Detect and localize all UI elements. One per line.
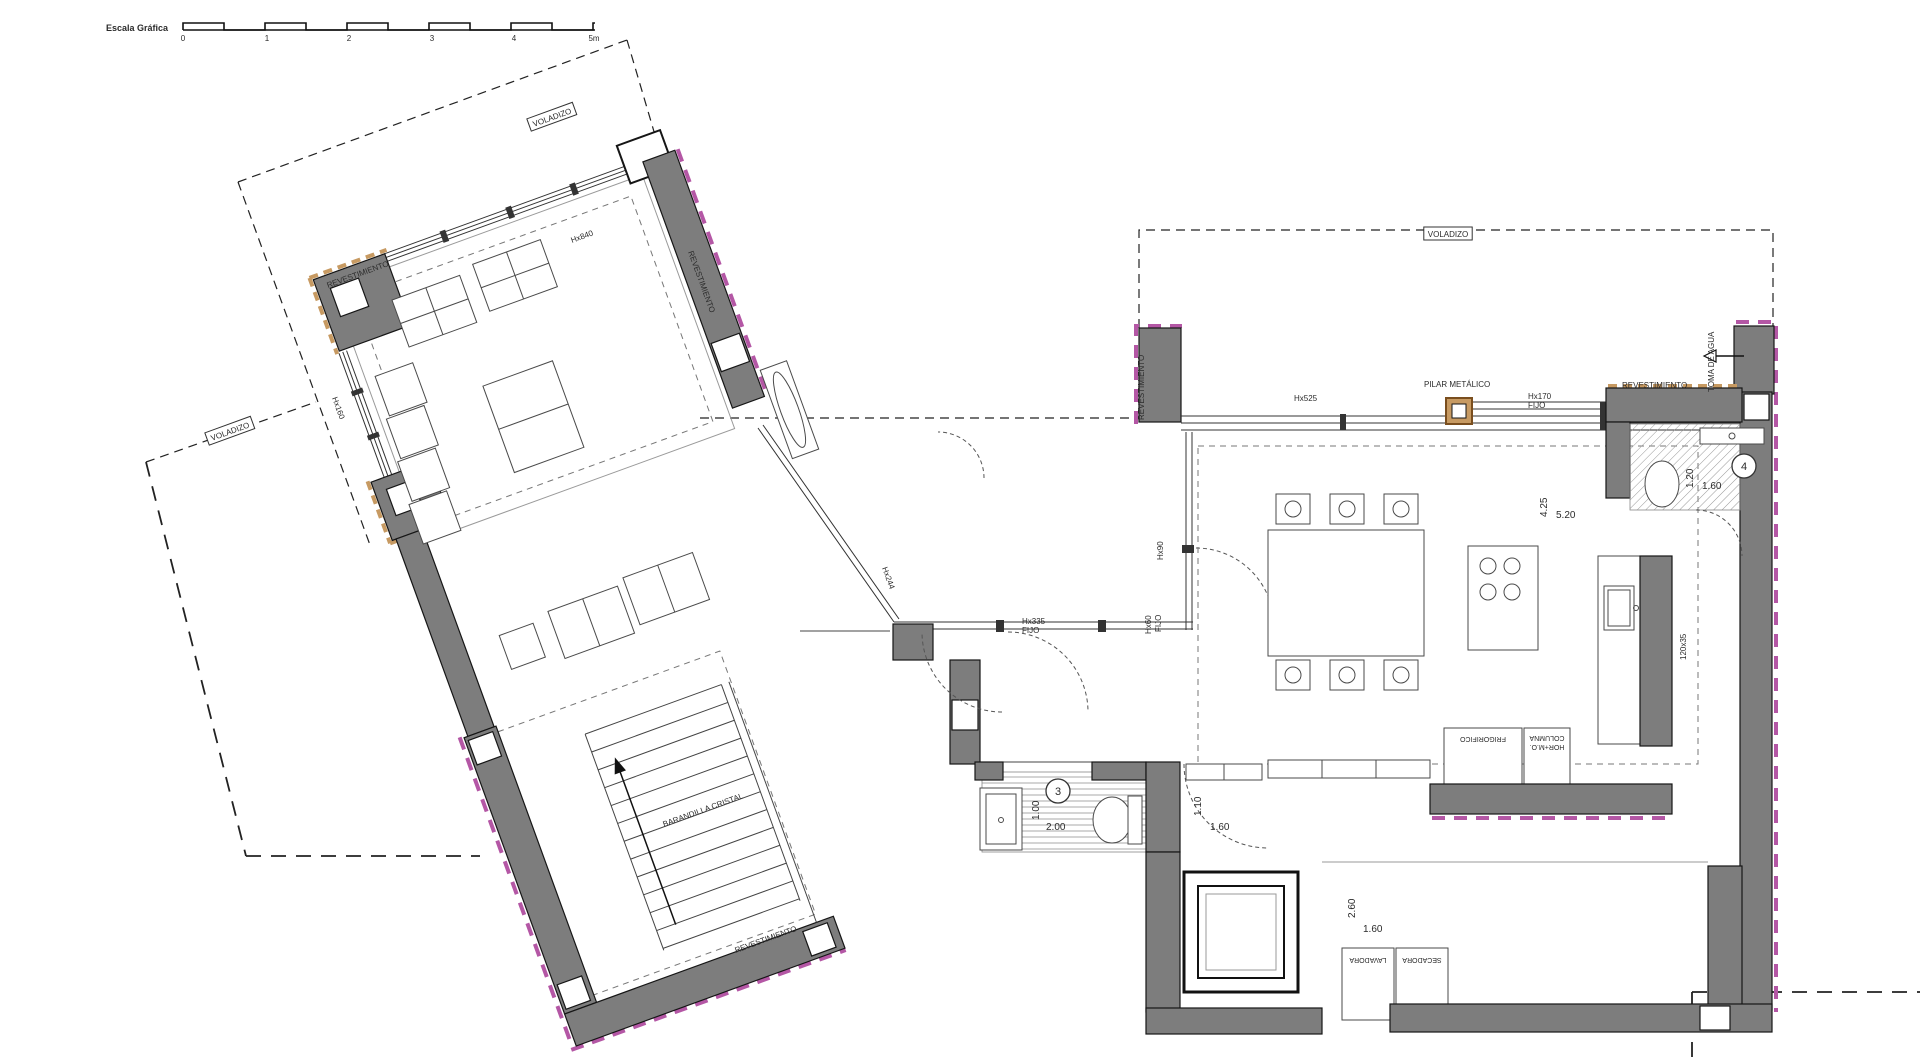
dim-kitchen-depth: 4.25 [1539, 497, 1550, 517]
dim-laundry-depth: 2.60 [1347, 898, 1358, 918]
voladizo-top-left: VOLADIZO [527, 102, 577, 131]
svg-text:FIJO: FIJO [1022, 626, 1039, 635]
vanity-bath4 [1700, 428, 1764, 444]
window-label-hx90: Hx90 [1156, 541, 1165, 560]
door-swing-kitchen [1196, 548, 1274, 626]
door-swing-bath4 [1696, 510, 1742, 556]
voladizo-mid-left: VOLADIZO [205, 416, 255, 445]
toma-de-agua: TOMA DE AGUA [1707, 331, 1716, 392]
svg-text:5.20: 5.20 [1556, 510, 1576, 521]
scale-tick-5: 5m [588, 34, 599, 43]
svg-text:COLUMNA: COLUMNA [1529, 734, 1564, 741]
scale-bar [183, 23, 595, 30]
svg-text:Hx60: Hx60 [1144, 615, 1153, 634]
appliance-lavadora: LAVADORA [1349, 956, 1386, 963]
svg-text:4: 4 [1741, 461, 1747, 473]
pillar-entry [893, 624, 933, 660]
svg-text:Hx840: Hx840 [570, 228, 595, 245]
window-label-hx244: Hx244 [880, 566, 897, 591]
scale-tick-4: 4 [512, 34, 517, 43]
window-label-hx160: Hx160 [330, 396, 347, 421]
scale-tick-1: 1 [265, 34, 270, 43]
dim-hall-width: 1.60 [1210, 822, 1230, 833]
svg-text:FIJO: FIJO [1154, 615, 1163, 632]
svg-text:120x35: 120x35 [1679, 633, 1688, 660]
kitchen-island [1468, 546, 1538, 650]
wall-west-lower [396, 529, 494, 736]
dim-bath3-width: 2.00 [1046, 822, 1066, 833]
svg-text:2.60: 2.60 [1347, 898, 1358, 918]
stair-railing-label: BARANDILLA CRISTAL [662, 791, 745, 829]
svg-text:3: 3 [430, 34, 435, 43]
window-label-hx840: Hx840 [570, 228, 595, 245]
svg-text:Hx244: Hx244 [880, 566, 897, 591]
door-swing-entry [922, 632, 1088, 712]
scale-tick-2: 2 [347, 34, 352, 43]
wall-east-exterior [1740, 392, 1772, 1010]
hallway [1146, 762, 1268, 852]
scale-tick-0: 0 [181, 34, 186, 43]
revestimiento-pier: REVESTIMIENTO [1137, 355, 1146, 420]
kitchen-counter-east [1598, 556, 1640, 744]
svg-text:SECADORA: SECADORA [1402, 956, 1442, 963]
glazing-north [383, 163, 633, 264]
room-number-4: 4 [1732, 454, 1756, 478]
cabinet-row [1268, 760, 1430, 778]
svg-text:PILAR METÁLICO: PILAR METÁLICO [1424, 380, 1490, 389]
svg-text:REVESTIMIENTO: REVESTIMIENTO [1137, 355, 1146, 420]
svg-text:Hx335: Hx335 [1022, 617, 1046, 626]
svg-text:1.60: 1.60 [1210, 822, 1230, 833]
stair-hall-walls [460, 638, 846, 1049]
pilar-metalico: PILAR METÁLICO [1424, 380, 1490, 389]
svg-text:5m: 5m [588, 34, 599, 43]
appliance-frigorifico: FRIGORIFICO [1460, 735, 1506, 742]
dim-bath4-depth: 1.20 [1685, 468, 1696, 488]
dim-kitchen-width: 5.20 [1556, 510, 1576, 521]
svg-text:HOR+M.O.: HOR+M.O. [1530, 743, 1565, 750]
corner-block-northeast-kitchen [1734, 326, 1774, 394]
door-swing-courtyard [938, 432, 984, 478]
room-number-3: 3 [1046, 779, 1070, 803]
svg-text:1.10: 1.10 [1193, 796, 1204, 816]
svg-text:1.00: 1.00 [1031, 800, 1042, 820]
svg-text:2.00: 2.00 [1046, 822, 1066, 833]
living-room-furniture [339, 175, 856, 691]
svg-text:1.60: 1.60 [1363, 924, 1383, 935]
svg-text:2: 2 [347, 34, 352, 43]
floor-plan-page: Escala Gráfica012345mVOLADIZOVOLADIZOVOL… [0, 0, 1920, 1061]
dim-laundry-width: 1.60 [1363, 924, 1383, 935]
dim-bath3-depth: 1.00 [1031, 800, 1042, 820]
svg-text:FRIGORIFICO: FRIGORIFICO [1460, 735, 1506, 742]
svg-text:3: 3 [1055, 786, 1061, 798]
svg-text:Hx170: Hx170 [1528, 392, 1552, 401]
living-wing [288, 116, 983, 1049]
svg-text:REVESTIMIENTO: REVESTIMIENTO [1622, 381, 1687, 390]
voladizo-right: VOLADIZO [1424, 227, 1472, 240]
dim-hall-depth: 1.10 [1193, 796, 1204, 816]
revestimiento-right: REVESTIMIENTO [1622, 381, 1687, 390]
toilet-bath3 [1093, 797, 1131, 843]
svg-text:Hx525: Hx525 [1294, 394, 1318, 403]
toilet-bath4 [1645, 461, 1679, 507]
dim-bath4-width: 1.60 [1702, 481, 1722, 492]
svg-text:0: 0 [181, 34, 186, 43]
dining-set [1268, 494, 1424, 690]
window-label-fijo-1: FIJO [1528, 401, 1545, 410]
wall-laundry-east [1708, 866, 1742, 1008]
svg-text:LAVADORA: LAVADORA [1349, 956, 1386, 963]
bathroom-3 [975, 762, 1146, 852]
appliance-secadora: SECADORA [1402, 956, 1442, 963]
svg-text:4: 4 [512, 34, 517, 43]
svg-text:1: 1 [265, 34, 270, 43]
floor-plan-drawing: Escala Gráfica012345mVOLADIZOVOLADIZOVOL… [0, 0, 1920, 1061]
wall-kitchen-east [1640, 556, 1672, 746]
appliance-columna-1: COLUMNA [1529, 734, 1564, 741]
laundry-room [1322, 862, 1772, 1032]
svg-text:FIJO: FIJO [1528, 401, 1545, 410]
window-label-fijo-2: FIJO [1022, 626, 1039, 635]
svg-text:Escala Gráfica: Escala Gráfica [106, 23, 169, 33]
courtyard [758, 425, 1274, 632]
svg-text:4.25: 4.25 [1539, 497, 1550, 517]
svg-text:BARANDILLA CRISTAL: BARANDILLA CRISTAL [662, 791, 745, 829]
window-label-hx170: Hx170 [1528, 392, 1552, 401]
elevator-shaft [1146, 852, 1322, 1034]
window-label-hx335: Hx335 [1022, 617, 1046, 626]
scale-tick-3: 3 [430, 34, 435, 43]
steel-pillar [1446, 398, 1472, 424]
svg-text:1.60: 1.60 [1702, 481, 1722, 492]
counter-note: 120x35 [1679, 633, 1688, 660]
window-label-hx525: Hx525 [1294, 394, 1318, 403]
window-label-hx60: Hx60 [1144, 615, 1153, 634]
svg-text:Hx160: Hx160 [330, 396, 347, 421]
dining-table [1268, 530, 1424, 656]
labels-layer: Escala Gráfica012345mVOLADIZOVOLADIZOVOL… [106, 23, 1756, 963]
appliance-columna-2: HOR+M.O. [1530, 743, 1565, 750]
window-label-fijo-3: FIJO [1154, 615, 1163, 632]
svg-text:VOLADIZO: VOLADIZO [1428, 230, 1468, 239]
svg-text:Hx90: Hx90 [1156, 541, 1165, 560]
svg-text:1.20: 1.20 [1685, 468, 1696, 488]
svg-text:TOMA DE AGUA: TOMA DE AGUA [1707, 331, 1716, 392]
scale-title: Escala Gráfica [106, 23, 169, 33]
